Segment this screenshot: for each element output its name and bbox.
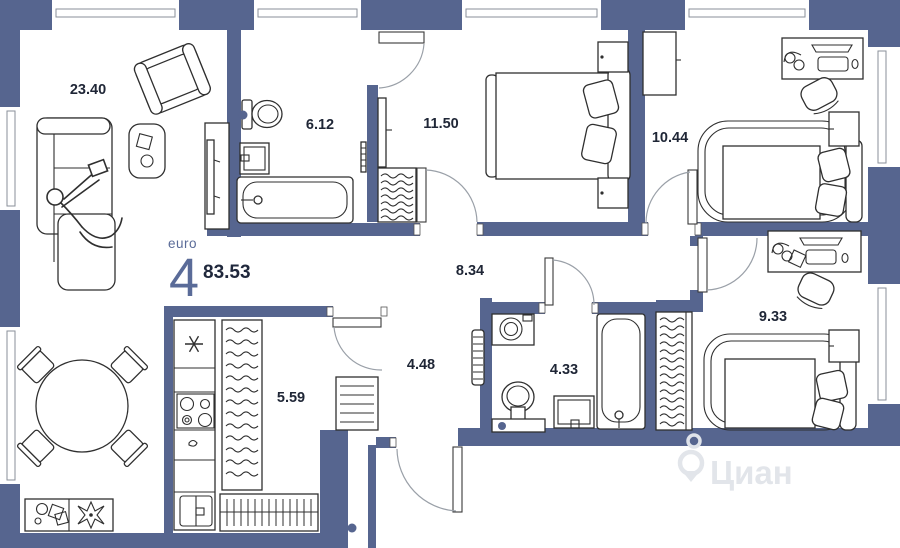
toilet-1 — [242, 100, 282, 129]
watermark-pin-icon — [680, 452, 702, 482]
unit-info: euro 4 83.53 — [168, 236, 251, 308]
room-area-hallway: 8.34 — [456, 263, 484, 279]
room-area-bathroom2: 4.33 — [550, 362, 578, 378]
wardrobe-bedroom-3 — [656, 312, 692, 430]
sideboard — [25, 499, 113, 531]
entry-dot — [348, 524, 357, 533]
sink-2 — [554, 396, 594, 428]
desk-bedroom-2 — [782, 38, 863, 79]
wardrobe-bedroom-2 — [643, 32, 681, 95]
sink-1 — [240, 143, 269, 174]
bed-double — [486, 68, 630, 182]
door-bathroom-1 — [379, 32, 424, 88]
wall-dot — [239, 111, 248, 120]
room-area-bedroom3: 9.33 — [759, 309, 787, 325]
door-entry — [397, 447, 462, 512]
door-bathroom-2 — [545, 258, 594, 305]
desk-chair — [793, 270, 837, 312]
tv-bedroom-1 — [378, 98, 392, 167]
room-area-kitchen: 5.59 — [277, 390, 305, 406]
desk-bedroom-3 — [768, 231, 861, 272]
floor-plan-canvas: Циан 23.40 6.12 11.50 10.44 8.34 9.33 4.… — [0, 0, 900, 548]
bathtub-1 — [237, 177, 353, 223]
window-top-4 — [685, 0, 809, 30]
tv-console-living — [205, 123, 229, 229]
nightstand — [598, 178, 628, 208]
window-top-1 — [52, 0, 179, 30]
wardrobe-bedroom-1 — [378, 168, 416, 222]
floor-plan: Циан 23.40 6.12 11.50 10.44 8.34 9.33 4.… — [0, 0, 900, 548]
door-bedroom-1 — [417, 168, 477, 222]
nightstand — [598, 42, 628, 72]
armchair — [133, 42, 213, 116]
window-top-2 — [254, 0, 361, 30]
door-bedroom-3 — [698, 238, 757, 292]
towel-rail — [361, 142, 366, 172]
washing-machine — [492, 314, 534, 345]
fixture-dot — [498, 422, 506, 430]
unit-total-area: 83.53 — [203, 262, 251, 283]
unit-rooms-count: 4 — [169, 248, 199, 308]
kitchen-tall-cabinet — [222, 320, 262, 490]
window-right-2 — [868, 284, 900, 404]
window-right-1 — [868, 47, 900, 167]
kitchen-units — [174, 320, 215, 530]
coffee-table — [129, 124, 165, 178]
coat-rack — [472, 330, 484, 385]
nightstand — [829, 330, 859, 362]
room-area-corridor: 4.48 — [407, 357, 435, 373]
room-area-bedroom1: 11.50 — [423, 116, 459, 132]
radiator-kitchen — [220, 494, 318, 531]
toilet-2 — [492, 382, 545, 432]
room-area-bathroom1: 6.12 — [306, 117, 334, 133]
door-bedroom-2 — [646, 170, 697, 224]
shoe-cabinet — [336, 377, 378, 430]
nightstand — [829, 112, 859, 146]
door-kitchen — [333, 318, 382, 370]
sofa — [37, 118, 115, 290]
window-top-3 — [462, 0, 601, 30]
dining-table — [36, 360, 128, 452]
room-area-bedroom2: 10.44 — [652, 130, 688, 146]
window-left-2 — [0, 327, 20, 484]
watermark-text: Циан — [710, 454, 793, 491]
window-left-1 — [0, 107, 20, 210]
bathtub-2 — [597, 314, 645, 429]
room-area-living: 23.40 — [70, 82, 106, 98]
